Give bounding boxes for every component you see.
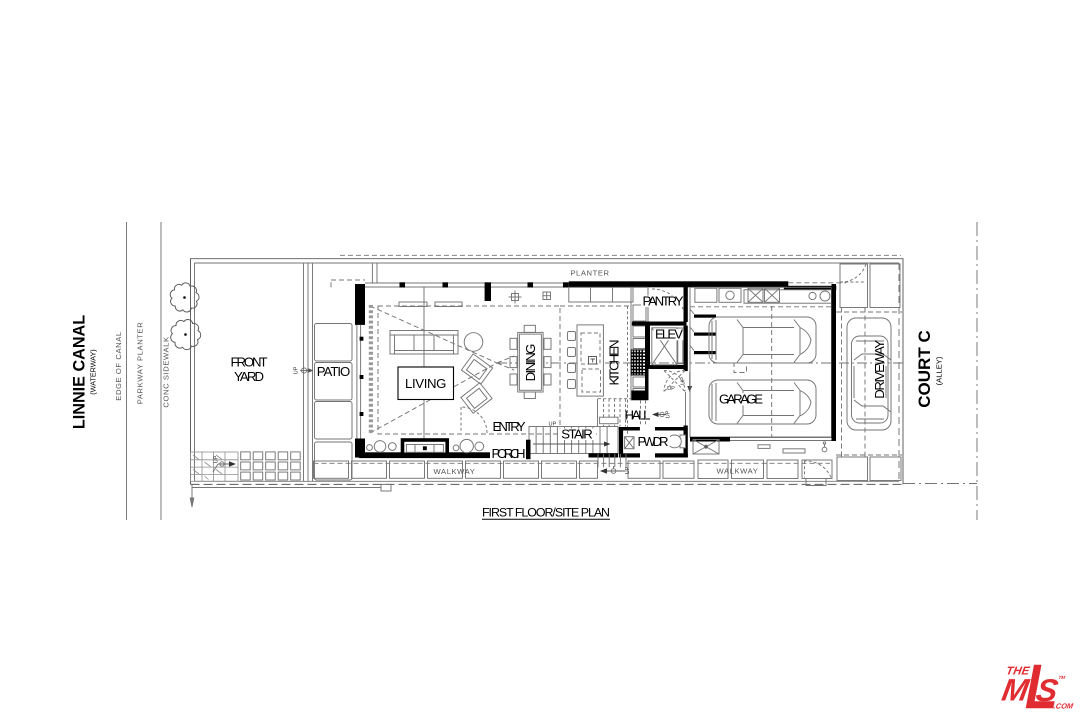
svg-text:UP: UP [667, 386, 675, 392]
svg-text:ENTRY: ENTRY [493, 419, 526, 434]
svg-text:FIRST FLOOR/SITE PLAN: FIRST FLOOR/SITE PLAN [482, 506, 610, 520]
svg-text:UP: UP [681, 377, 687, 385]
svg-text:PARKWAY PLANTER: PARKWAY PLANTER [136, 322, 145, 405]
svg-text:TM: TM [1058, 675, 1066, 680]
svg-text:(ALLEY): (ALLEY) [935, 356, 944, 385]
svg-text:UP: UP [625, 466, 631, 474]
svg-text:COURT C: COURT C [915, 330, 934, 407]
svg-text:KITCHEN: KITCHEN [606, 340, 621, 386]
svg-text:WALKWAY: WALKWAY [434, 467, 476, 476]
svg-text:WALKWAY: WALKWAY [717, 467, 759, 476]
svg-text:GARAGE: GARAGE [719, 392, 763, 407]
svg-text:CONC SIDEWALK: CONC SIDEWALK [162, 336, 171, 407]
svg-text:DRIVEWAY: DRIVEWAY [872, 340, 887, 399]
svg-text:PWDR: PWDR [638, 434, 669, 449]
svg-text:EDGE OF CANAL: EDGE OF CANAL [114, 331, 123, 400]
svg-text:PLANTER: PLANTER [570, 269, 609, 278]
svg-text:UP: UP [666, 410, 672, 418]
svg-text:LINNIE CANAL: LINNIE CANAL [71, 315, 89, 429]
svg-text:UP: UP [294, 366, 300, 374]
svg-text:UP: UP [549, 421, 557, 427]
svg-text:PATIO: PATIO [317, 364, 351, 379]
svg-text:ELEV: ELEV [655, 327, 683, 342]
svg-text:PANTRY: PANTRY [643, 293, 684, 308]
svg-text:DINING: DINING [523, 344, 538, 382]
svg-text:STAIR: STAIR [561, 426, 593, 441]
svg-text:(WATERWAY): (WATERWAY) [89, 349, 98, 394]
svg-text:FRONT: FRONT [231, 355, 268, 370]
svg-text:HALL: HALL [625, 408, 651, 423]
svg-text:PORCH: PORCH [492, 446, 526, 461]
svg-text:LIVING: LIVING [405, 376, 447, 391]
svg-text:YARD: YARD [234, 369, 264, 384]
svg-text:.COM: .COM [1053, 701, 1075, 710]
svg-text:UP: UP [214, 455, 220, 463]
